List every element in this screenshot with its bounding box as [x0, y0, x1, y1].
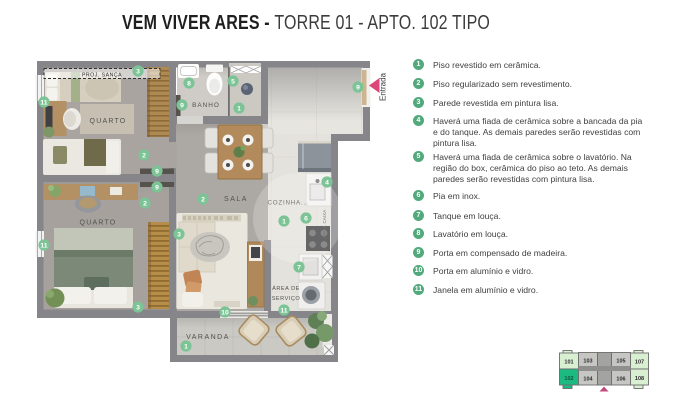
svg-text:9: 9: [155, 169, 159, 176]
svg-text:3: 3: [136, 305, 140, 312]
svg-text:QUARTO: QUARTO: [90, 118, 127, 125]
svg-text:9: 9: [180, 103, 184, 110]
svg-text:2: 2: [143, 201, 147, 208]
svg-text:1: 1: [282, 219, 286, 226]
svg-text:8: 8: [187, 81, 191, 88]
svg-text:QUARTO: QUARTO: [80, 220, 117, 227]
svg-text:3: 3: [136, 69, 140, 76]
svg-text:102: 102: [564, 376, 573, 382]
svg-text:5: 5: [231, 79, 235, 86]
svg-text:VARANDA: VARANDA: [186, 334, 230, 341]
svg-text:2: 2: [201, 197, 205, 204]
svg-text:11: 11: [40, 100, 47, 107]
svg-text:2: 2: [142, 153, 146, 160]
svg-text:4: 4: [325, 180, 329, 187]
svg-text:104: 104: [583, 377, 593, 383]
svg-text:105: 105: [616, 359, 625, 365]
svg-text:1: 1: [237, 106, 241, 113]
svg-text:ÁREA DE: ÁREA DE: [272, 285, 300, 292]
svg-text:SALA: SALA: [224, 196, 248, 203]
svg-text:1: 1: [184, 344, 188, 351]
svg-text:103: 103: [583, 359, 592, 365]
svg-text:PROJ. SANÇA: PROJ. SANÇA: [82, 72, 122, 78]
svg-text:11: 11: [280, 308, 287, 315]
svg-text:106: 106: [616, 377, 625, 383]
svg-text:9: 9: [155, 185, 159, 192]
svg-text:3: 3: [177, 232, 181, 239]
svg-text:10: 10: [221, 310, 229, 317]
svg-text:BANHO: BANHO: [192, 102, 220, 109]
svg-text:Entrada: Entrada: [379, 72, 388, 101]
svg-text:6: 6: [304, 216, 308, 223]
svg-text:SERVIÇO: SERVIÇO: [272, 296, 301, 302]
svg-text:107: 107: [635, 360, 644, 366]
svg-text:7: 7: [297, 265, 301, 272]
svg-text:101: 101: [564, 360, 573, 366]
svg-text:9: 9: [356, 85, 360, 92]
svg-text:11: 11: [40, 243, 47, 250]
svg-text:108: 108: [635, 376, 644, 382]
